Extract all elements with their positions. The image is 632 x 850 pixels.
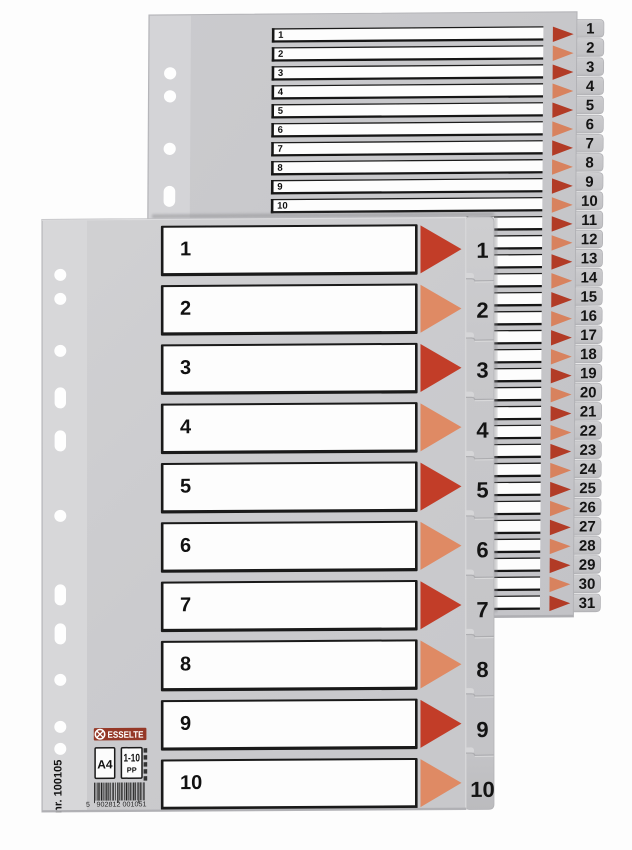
svg-text:10: 10 [180,772,202,794]
svg-text:001051: 001051 [123,801,147,808]
svg-text:15: 15 [580,289,597,306]
svg-text:10: 10 [470,777,494,802]
svg-text:4: 4 [278,87,284,98]
svg-text:6: 6 [476,537,488,562]
svg-text:9: 9 [277,182,282,193]
svg-text:1: 1 [278,30,284,41]
svg-text:22: 22 [580,423,597,440]
svg-text:9: 9 [476,717,488,742]
svg-text:28: 28 [579,537,596,554]
svg-text:30: 30 [579,576,596,593]
svg-text:14: 14 [581,269,598,286]
svg-text:7: 7 [476,597,488,622]
svg-text:4: 4 [476,418,489,443]
svg-text:1: 1 [586,20,594,37]
svg-text:12: 12 [581,231,598,248]
svg-text:2: 2 [278,49,283,60]
svg-text:18: 18 [580,346,597,363]
svg-text:8: 8 [180,653,191,675]
svg-text:9: 9 [585,174,593,191]
svg-text:13: 13 [581,250,598,267]
svg-text:3: 3 [180,357,191,379]
svg-text:5: 5 [586,97,594,114]
svg-text:6: 6 [180,535,191,557]
svg-text:31: 31 [579,595,596,612]
svg-text:7: 7 [180,594,191,616]
svg-text:5: 5 [180,476,191,498]
svg-text:26: 26 [579,499,596,516]
svg-text:25: 25 [579,480,596,497]
svg-text:3: 3 [476,358,488,383]
svg-text:2: 2 [180,298,191,320]
svg-text:2: 2 [586,40,594,57]
svg-text:PP: PP [127,765,137,774]
svg-text:27: 27 [579,518,596,535]
svg-text:5: 5 [86,802,90,809]
svg-text:10: 10 [581,193,598,210]
svg-text:1: 1 [180,238,191,260]
svg-text:7: 7 [277,144,282,155]
svg-text:5: 5 [278,106,284,117]
svg-text:20: 20 [580,384,597,401]
svg-text:8: 8 [277,163,282,174]
svg-text:nr. 100105: nr. 100105 [53,760,65,813]
svg-text:10: 10 [277,201,288,212]
svg-text:16: 16 [580,308,597,325]
svg-text:8: 8 [476,657,488,682]
svg-text:902812: 902812 [97,802,121,809]
svg-text:3: 3 [586,59,594,76]
svg-text:ESSELTE: ESSELTE [108,730,144,740]
svg-text:3: 3 [278,68,283,79]
svg-text:5: 5 [476,477,488,502]
svg-text:1: 1 [476,238,488,263]
svg-text:24: 24 [579,461,596,478]
svg-text:6: 6 [586,116,594,133]
svg-text:19: 19 [580,365,597,382]
svg-text:1-10: 1-10 [123,752,140,764]
svg-text:A4: A4 [97,757,113,771]
svg-text:9: 9 [180,713,191,735]
svg-text:17: 17 [580,327,597,344]
svg-text:21: 21 [580,403,597,420]
svg-text:4: 4 [180,416,192,438]
svg-text:7: 7 [585,135,593,152]
svg-text:23: 23 [579,442,596,459]
svg-text:2: 2 [476,298,488,323]
svg-text:11: 11 [581,212,597,229]
svg-text:29: 29 [579,557,596,574]
svg-text:4: 4 [586,78,595,95]
svg-text:6: 6 [278,125,283,136]
svg-text:8: 8 [585,155,593,172]
